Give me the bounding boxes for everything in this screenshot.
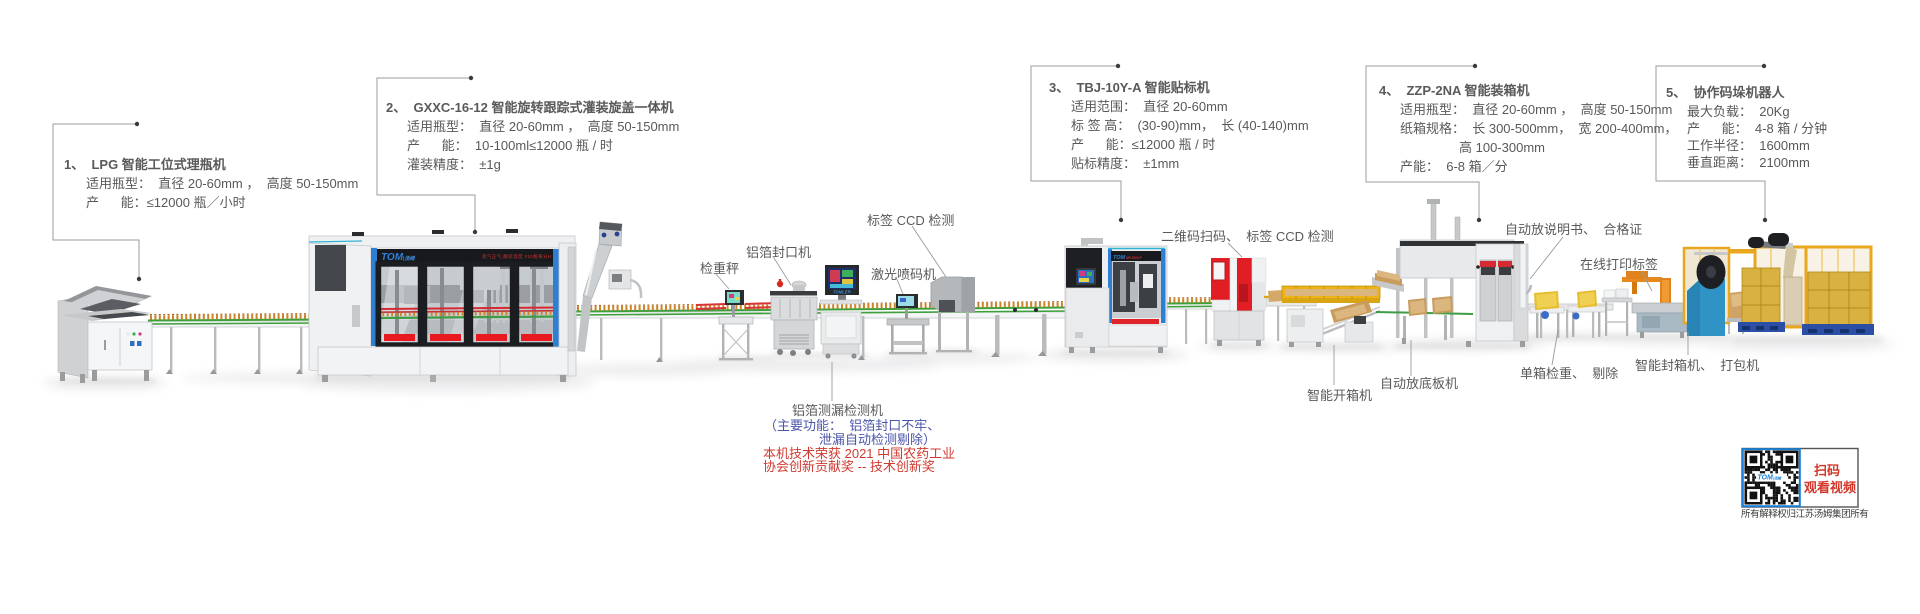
svg-text:TOM|汤姆: TOM|汤姆 (1757, 475, 1782, 482)
svg-text:TOMLER: TOMLER (833, 290, 851, 295)
svg-text:装气正气,酬装温度 #10瓶每分H: 装气正气,酬装温度 #10瓶每分H (482, 253, 552, 260)
